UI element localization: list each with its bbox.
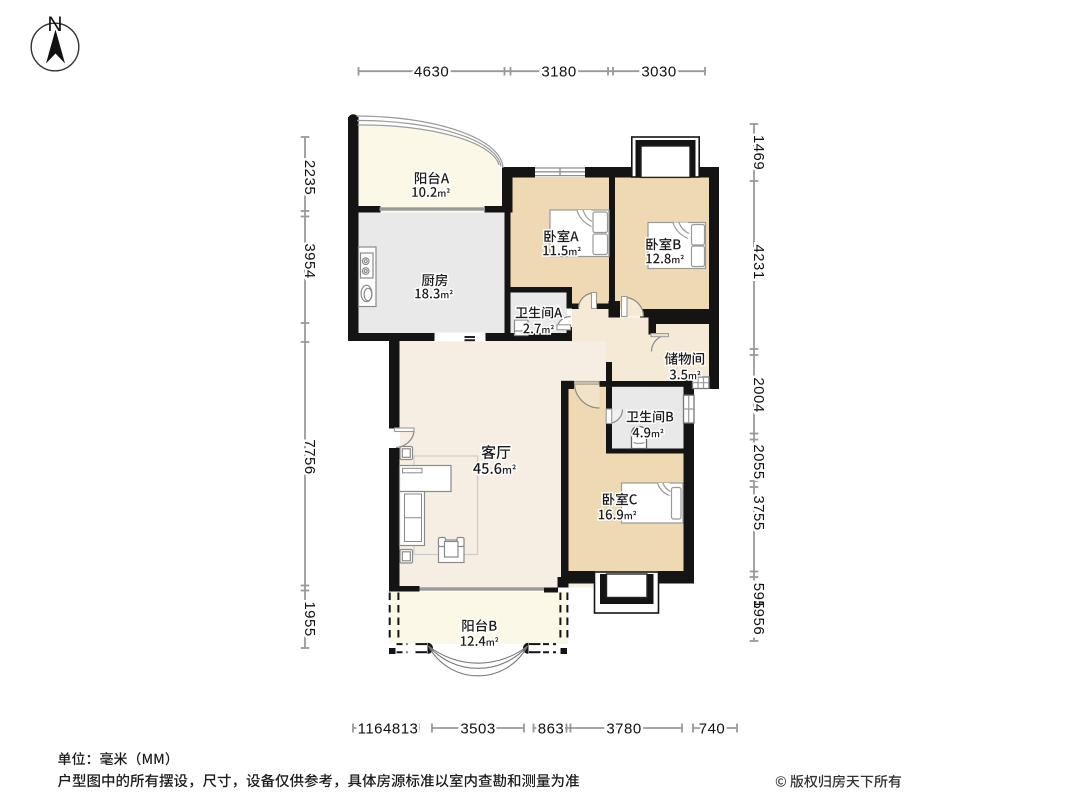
svg-text:3030: 3030 bbox=[641, 64, 676, 81]
svg-text:2004: 2004 bbox=[750, 377, 767, 412]
svg-text:1469: 1469 bbox=[750, 135, 767, 170]
svg-text:3954: 3954 bbox=[301, 243, 318, 278]
svg-text:3780: 3780 bbox=[606, 721, 641, 738]
svg-text:3755: 3755 bbox=[750, 495, 767, 530]
svg-text:4231: 4231 bbox=[750, 244, 767, 279]
svg-text:740: 740 bbox=[699, 721, 726, 738]
svg-text:863: 863 bbox=[538, 721, 565, 738]
svg-text:1956: 1956 bbox=[750, 600, 767, 635]
svg-text:7756: 7756 bbox=[301, 439, 318, 474]
svg-text:3180: 3180 bbox=[541, 64, 576, 81]
svg-text:1164813: 1164813 bbox=[358, 721, 419, 738]
svg-text:1955: 1955 bbox=[301, 601, 318, 636]
svg-text:3503: 3503 bbox=[460, 721, 495, 738]
svg-text:2055: 2055 bbox=[750, 444, 767, 479]
svg-text:4630: 4630 bbox=[414, 64, 449, 81]
svg-text:2235: 2235 bbox=[301, 160, 318, 195]
